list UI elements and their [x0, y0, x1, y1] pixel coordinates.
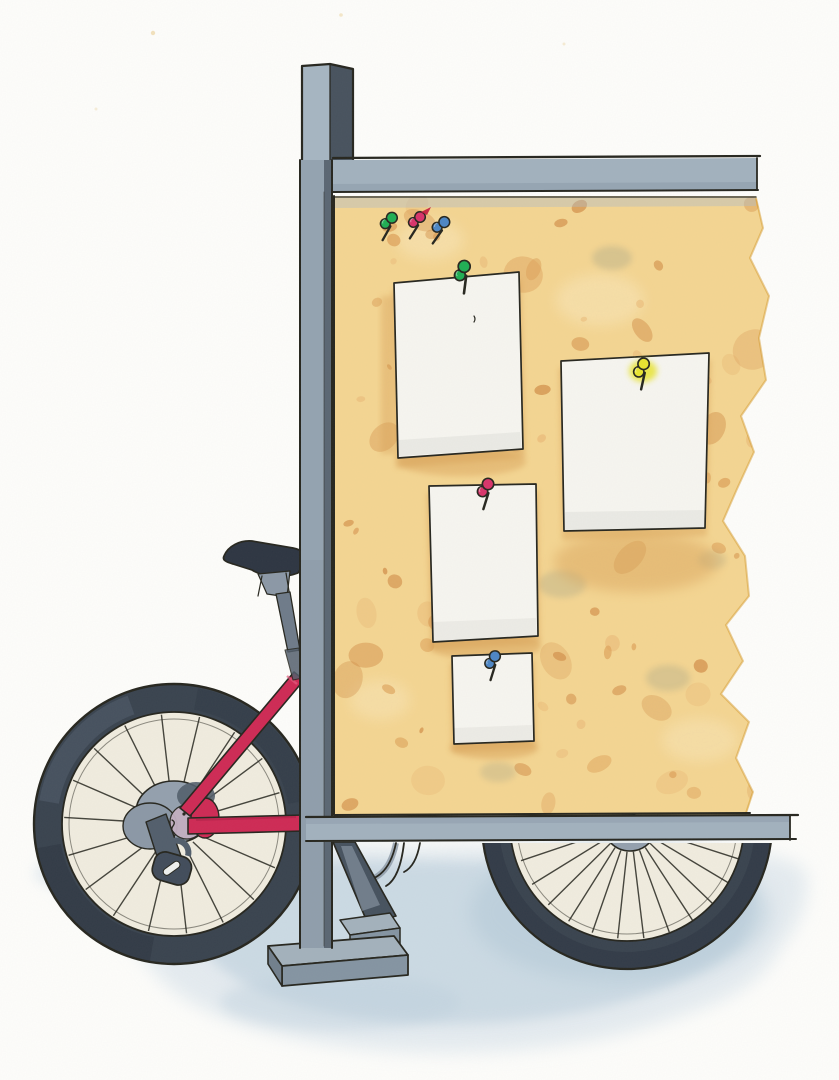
watercolor-illustration [0, 0, 839, 1080]
paper-grain-overlay [0, 0, 839, 1080]
illustration: A pink bicycle leans locked against a gr… [0, 0, 839, 1080]
